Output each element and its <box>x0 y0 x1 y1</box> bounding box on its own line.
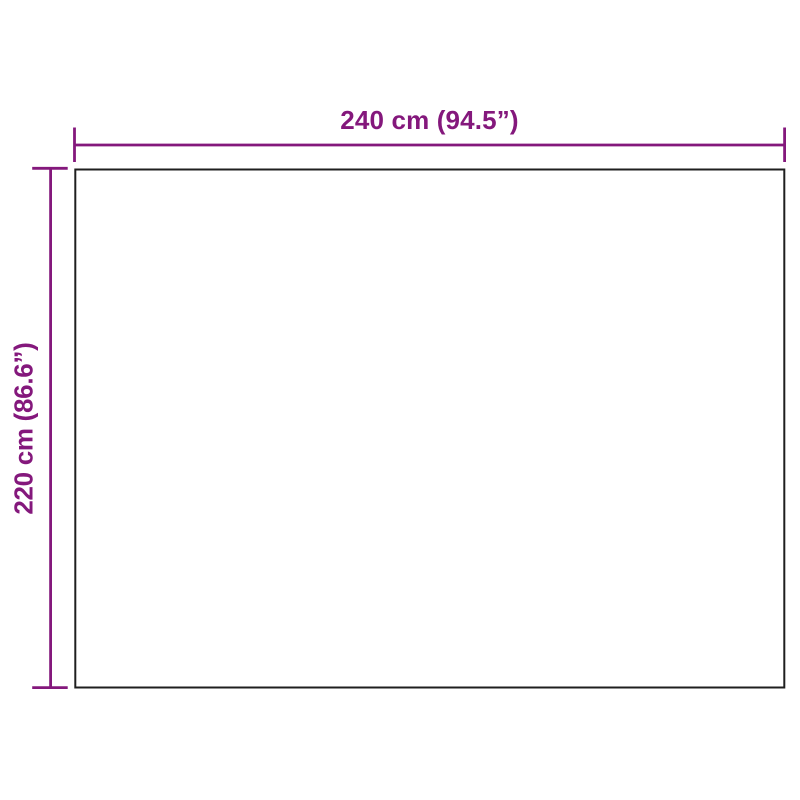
svg-text:220 cm (86.6”): 220 cm (86.6”) <box>9 343 39 515</box>
svg-text:240 cm (94.5”): 240 cm (94.5”) <box>340 105 518 135</box>
